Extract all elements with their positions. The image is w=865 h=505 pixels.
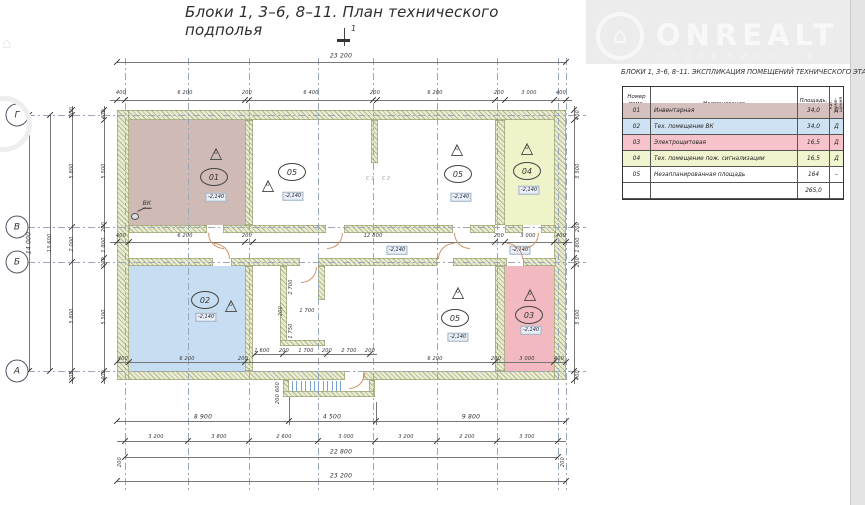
dimension-label: 400 (101, 370, 107, 380)
dimension-label: 2 000 (69, 236, 75, 251)
level-mark: -2,140 (386, 246, 407, 255)
dimension-label: 1 600 (254, 348, 269, 354)
dimension-label: 200 (101, 222, 107, 232)
room-category-triangle: △0 (449, 141, 465, 156)
room-number-ellipse: 01 (200, 168, 228, 186)
dimension-label: 2 200 (459, 434, 474, 440)
door-arc (301, 267, 317, 283)
row-number: 01 (623, 103, 651, 119)
section-mark-number: 1 (351, 24, 356, 33)
dimension-label: 3 200 (398, 434, 413, 440)
dimension-label: 400 (556, 90, 566, 96)
stair-tread (314, 381, 315, 391)
level-mark: -2,140 (520, 326, 541, 335)
grid-line-horizontal (28, 227, 586, 228)
dimension-label: 200 (278, 306, 284, 316)
watermark-ghost-house-icon: ⌂ (2, 34, 12, 52)
room-category-triangle: △0 (522, 286, 538, 301)
dimension-label: 400 (575, 110, 581, 120)
axis-bubble: В (6, 216, 29, 239)
triangle-value: 0 (455, 146, 459, 152)
level-mark: -2,140 (195, 313, 216, 322)
level-mark: -2,140 (518, 186, 539, 195)
dimension-label: 5 500 (101, 309, 107, 324)
stair-tread (310, 381, 311, 391)
dimension-label: 400 (101, 109, 107, 119)
door-arc (214, 243, 230, 259)
row-area: 16,5 (798, 151, 830, 167)
dimension-label: 23 200 (330, 473, 352, 480)
dimension-label: 200 (494, 233, 504, 239)
total-area: 265,0 (798, 183, 830, 199)
door-arc (438, 243, 454, 259)
stair-tread (296, 381, 297, 391)
row-category: Д (830, 135, 843, 151)
dimension-label: 23 200 (330, 53, 352, 60)
dimension-line (117, 441, 566, 442)
dimension-label: 200 (494, 90, 504, 96)
row-number: 02 (623, 119, 651, 135)
room-number-ellipse: 03 (515, 306, 543, 324)
dimension-label: 200 (365, 348, 375, 354)
stair-tread (305, 381, 306, 391)
room-category-triangle: △0 (450, 284, 466, 299)
explication-table-title: БЛОКИ 1, 3–6, 8–11. ЭКСПЛИКАЦИЯ ПОМЕЩЕНИ… (621, 68, 853, 76)
triangle-value: 0 (528, 291, 532, 297)
dimension-label: 400 (554, 356, 564, 362)
triangle-value: 0 (525, 145, 529, 151)
dimension-label: 12 800 (364, 233, 383, 239)
row-number: 05 (623, 167, 651, 183)
dimension-label: 400 (116, 233, 126, 239)
dimension-label: 6 200 (427, 90, 442, 96)
grid-line-horizontal (28, 371, 586, 372)
dimension-label: 3 200 (148, 434, 163, 440)
axis-bubble: Б (6, 251, 29, 274)
room-number-ellipse: 02 (191, 291, 219, 309)
plumbing-fixture (131, 213, 139, 220)
dimension-label: 200 (491, 356, 501, 362)
dimension-label: 2 700 (341, 348, 356, 354)
dimension-label: 6 200 (179, 356, 194, 362)
triangle-value: 0 (229, 302, 233, 308)
room-number-ellipse: 05 (444, 165, 472, 183)
dimension-label: 22 800 (330, 449, 352, 456)
stair-tread (301, 381, 302, 391)
level-mark: -2,140 (282, 192, 303, 201)
dimension-label: 200 (575, 222, 581, 232)
stair-tread (292, 381, 293, 391)
wall-segment (318, 266, 325, 300)
section-mark-bar (337, 39, 350, 42)
dimension-label: 3 000 (519, 356, 534, 362)
dimension-label: 1 700 (298, 348, 313, 354)
axis-bubble: А (6, 360, 29, 383)
dimension-label: 200 (69, 371, 75, 381)
row-name: Инвентарная (651, 103, 798, 119)
stair-tread (336, 381, 337, 391)
dimension-label: 400 (118, 356, 128, 362)
dimension-label: 6 200 (177, 90, 192, 96)
dimension-line (117, 421, 566, 422)
room-number-ellipse: 05 (441, 309, 469, 327)
door-arc (454, 233, 470, 249)
dimension-line (255, 354, 377, 355)
row-category: Д (830, 119, 843, 135)
dimension-label: 3 800 (211, 434, 226, 440)
room-category-triangle: △0 (519, 140, 535, 155)
dimension-label: 200 (117, 457, 123, 467)
grid-line-vertical (125, 58, 126, 492)
door-arc (327, 233, 343, 249)
dimension-label: 200 (69, 107, 75, 117)
triangle-value: 0 (214, 150, 218, 156)
row-name: Электрощитовая (651, 135, 798, 151)
dimension-label: 3 000 (338, 434, 353, 440)
row-number: 04 (623, 151, 651, 167)
room-number-ellipse: 05 (278, 163, 306, 181)
section-mark-line (344, 28, 345, 46)
grid-line-vertical (497, 58, 498, 492)
dimension-label: 200 (242, 90, 252, 96)
wall-segment (117, 110, 129, 380)
stair-tread (323, 381, 324, 391)
stair-tread (332, 381, 333, 391)
grid-line-vertical (249, 58, 250, 492)
stair-tread (318, 381, 319, 391)
dimension-label: 5 500 (575, 309, 581, 324)
dimension-line (117, 481, 566, 482)
dimension-label: 200 (575, 257, 581, 267)
dimension-label: 200 (279, 348, 289, 354)
watermark: ⌂ ONREALT НЕДВИЖИМОСТЬ (586, 0, 850, 64)
door-arc (523, 233, 539, 249)
dimension-label: С 2 (382, 177, 390, 182)
room-category-triangle: △0 (260, 177, 276, 192)
dimension-label: 6 200 (427, 356, 442, 362)
total-row-empty (830, 183, 843, 199)
dimension-line (117, 62, 566, 63)
room-category-triangle: △0 (208, 145, 224, 160)
grid-line-vertical (558, 58, 559, 492)
row-number: 03 (623, 135, 651, 151)
total-row-empty (651, 183, 798, 199)
room-fill (129, 120, 245, 225)
explication-table: Номер поме- щения Наименование Площадь, … (622, 86, 844, 200)
grid-line-vertical (437, 58, 438, 492)
grid-line-vertical (373, 58, 374, 492)
dimension-label: 200 (101, 257, 107, 267)
row-area: 164 (798, 167, 830, 183)
dimension-label: 1 700 (299, 308, 314, 314)
dimension-label: 1 750 (288, 323, 294, 338)
row-name: Тех. помещение пож. сигнализации (651, 151, 798, 167)
door-arc (349, 373, 365, 389)
grid-line-vertical (318, 58, 319, 492)
dimension-label: 1 800 (101, 237, 107, 252)
dimension-label: 9 800 (462, 414, 480, 421)
dimension-label: 600 (275, 382, 281, 392)
wall-segment (363, 371, 566, 380)
dimension-label: 5 800 (69, 163, 75, 178)
dimension-label: 2 600 (276, 434, 291, 440)
watermark-house-icon: ⌂ (596, 12, 644, 60)
row-area: 34,0 (798, 119, 830, 135)
triangle-value: 0 (456, 289, 460, 295)
dimension-line (125, 457, 558, 458)
wall-segment (117, 371, 345, 380)
dimension-label: 13 600 (47, 234, 53, 253)
dimension-label: 200 (242, 233, 252, 239)
row-category: – (830, 167, 843, 183)
room-category-triangle: △0 (223, 297, 239, 312)
dimension-label: 400 (556, 233, 566, 239)
dimension-label: 3 000 (521, 90, 536, 96)
dimension-label: С 3 (366, 177, 374, 182)
grid-line-vertical (188, 58, 189, 492)
row-area: 34,0 (798, 103, 830, 119)
room-number-ellipse: 04 (513, 162, 541, 180)
total-row-empty (623, 183, 651, 199)
row-name: Незапланированная площадь (651, 167, 798, 183)
wall-segment (554, 110, 566, 380)
dimension-line (117, 362, 566, 363)
dimension-label: 5 500 (575, 163, 581, 178)
dimension-label: 200 (560, 457, 566, 467)
dimension-label: 200 (322, 348, 332, 354)
level-mark: -2,140 (447, 333, 468, 342)
row-area: 16,5 (798, 135, 830, 151)
grid-line-vertical (566, 58, 567, 492)
watermark-subtitle-text: НЕДВИЖИМОСТЬ (659, 52, 820, 62)
dimension-label: 200 (238, 356, 248, 362)
dimension-label: 8 900 (194, 414, 212, 421)
level-mark: -2,140 (450, 193, 471, 202)
page-title: Блоки 1, 3–6, 8–11. План технического по… (185, 3, 545, 39)
dimension-label: 5 800 (69, 308, 75, 323)
row-category: Д (830, 151, 843, 167)
wall-segment (283, 391, 375, 397)
stair-tread (327, 381, 328, 391)
triangle-value: 0 (266, 182, 270, 188)
row-name: Тех. помещение ВК (651, 119, 798, 135)
dimension-label: 5 500 (101, 163, 107, 178)
dimension-label: 2 700 (288, 279, 294, 294)
grid-line-horizontal (28, 262, 586, 263)
level-mark: -2,140 (205, 193, 226, 202)
dimension-label: 6 200 (177, 233, 192, 239)
watermark-brand-text: ONREALT (656, 18, 838, 52)
dimension-label: 3 300 (519, 434, 534, 440)
dimension-label: 6 400 (303, 90, 318, 96)
dimension-label: 4 500 (323, 414, 341, 421)
grid-line-horizontal (28, 115, 586, 116)
dimension-label: 400 (575, 370, 581, 380)
dimension-label: 14 000 (26, 232, 33, 254)
dimension-label: 400 (116, 90, 126, 96)
dimension-label: 200 (275, 394, 281, 404)
dimension-label: 200 (370, 90, 380, 96)
stair-tread (340, 381, 341, 391)
dimension-label: 1 800 (575, 237, 581, 252)
